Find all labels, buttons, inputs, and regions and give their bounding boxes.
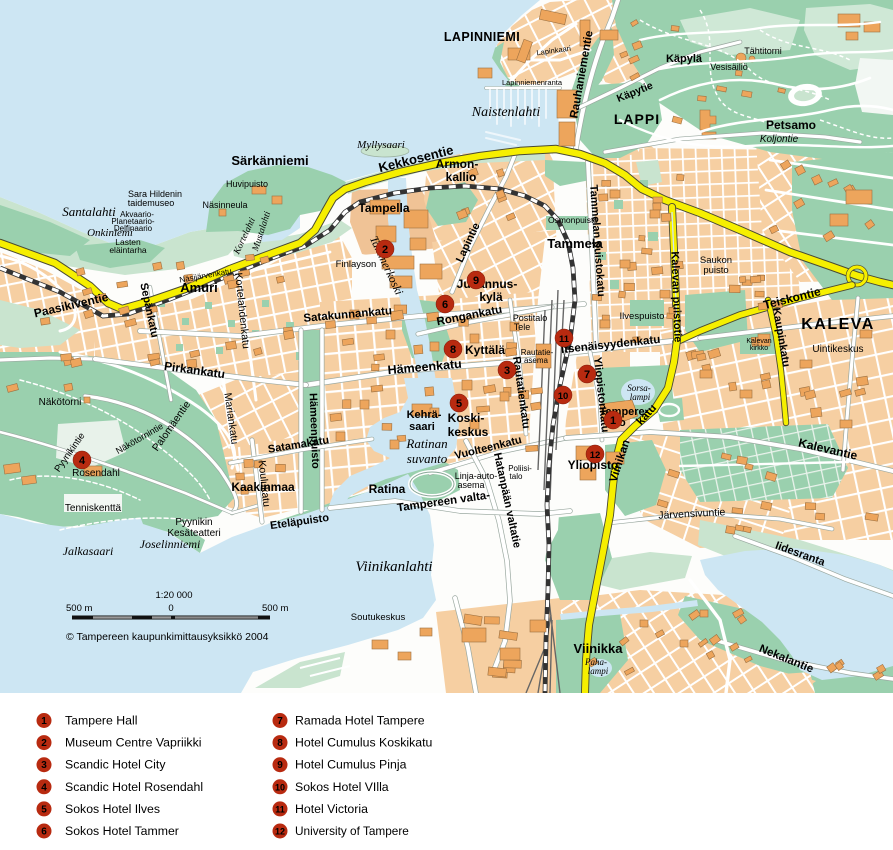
- svg-text:7: 7: [277, 716, 283, 727]
- svg-text:eläintarha: eläintarha: [109, 245, 147, 255]
- svg-text:Kyttälä: Kyttälä: [465, 343, 505, 357]
- svg-text:lampi: lampi: [630, 392, 651, 402]
- svg-text:Ratinan: Ratinan: [405, 436, 447, 451]
- svg-text:Vesisäiliö: Vesisäiliö: [710, 62, 748, 72]
- svg-text:Petsamo: Petsamo: [766, 118, 816, 132]
- svg-text:Näkötorni: Näkötorni: [39, 397, 82, 408]
- svg-text:6: 6: [41, 827, 47, 838]
- svg-text:Rosendahl: Rosendahl: [72, 468, 120, 479]
- svg-text:Pyynikin: Pyynikin: [175, 517, 212, 528]
- svg-text:Ratina: Ratina: [369, 482, 406, 496]
- svg-text:Ramada Hotel Tampere: Ramada Hotel Tampere: [295, 714, 425, 728]
- svg-text:6: 6: [442, 299, 448, 311]
- svg-text:Huvipuisto: Huvipuisto: [226, 179, 268, 189]
- svg-text:Kehrä-: Kehrä-: [407, 409, 442, 421]
- svg-text:2: 2: [41, 738, 47, 749]
- svg-text:Museum Centre Vapriikki: Museum Centre Vapriikki: [65, 736, 201, 750]
- svg-text:Onkiniemi: Onkiniemi: [87, 227, 133, 239]
- svg-text:Lapinniemenranta: Lapinniemenranta: [502, 78, 563, 87]
- svg-text:Myllysaari: Myllysaari: [356, 139, 405, 151]
- svg-text:Sokos Hotel VIlla: Sokos Hotel VIlla: [295, 780, 389, 794]
- svg-text:4: 4: [41, 782, 47, 793]
- svg-text:keskus: keskus: [448, 425, 489, 439]
- svg-text:500 m: 500 m: [66, 603, 92, 614]
- svg-text:Scandic Hotel Rosendahl: Scandic Hotel Rosendahl: [65, 780, 203, 794]
- svg-text:9: 9: [277, 760, 283, 771]
- svg-text:5: 5: [41, 804, 47, 815]
- svg-text:8: 8: [277, 738, 283, 749]
- svg-text:3: 3: [504, 365, 510, 377]
- svg-text:LAPINNIEMI: LAPINNIEMI: [444, 30, 520, 44]
- svg-text:Koski-: Koski-: [448, 411, 485, 425]
- svg-text:9: 9: [473, 275, 479, 287]
- svg-text:11: 11: [559, 334, 570, 345]
- svg-text:1: 1: [41, 716, 47, 727]
- svg-text:Scandic Hotel City: Scandic Hotel City: [65, 758, 166, 772]
- svg-text:Hotel Cumulus Koskikatu: Hotel Cumulus Koskikatu: [295, 736, 433, 750]
- svg-text:KALEVA: KALEVA: [801, 316, 875, 333]
- svg-text:0: 0: [168, 603, 173, 614]
- svg-text:Finlayson: Finlayson: [336, 259, 377, 270]
- svg-text:Naistenlahti: Naistenlahti: [471, 105, 541, 120]
- svg-text:11: 11: [275, 804, 285, 814]
- svg-text:1:20 000: 1:20 000: [156, 590, 193, 601]
- svg-text:LAPPI: LAPPI: [614, 111, 660, 127]
- svg-text:10: 10: [275, 782, 285, 792]
- svg-text:asema: asema: [457, 480, 484, 490]
- svg-text:Tampere Hall: Tampere Hall: [65, 714, 137, 728]
- svg-text:taidemuseo: taidemuseo: [128, 198, 175, 208]
- svg-text:Ilvespuisto: Ilvespuisto: [620, 311, 665, 322]
- svg-text:Soutukeskus: Soutukeskus: [351, 612, 406, 623]
- svg-text:suvanto: suvanto: [407, 451, 448, 466]
- svg-text:Tampella: Tampella: [358, 201, 409, 215]
- svg-text:kylä: kylä: [479, 290, 503, 304]
- svg-text:Hotel Victoria: Hotel Victoria: [295, 802, 368, 816]
- svg-text:500 m: 500 m: [262, 603, 288, 614]
- svg-text:Jalkasaari: Jalkasaari: [63, 544, 114, 558]
- svg-text:© Tampereen kaupunkimittausyks: © Tampereen kaupunkimittausyksikkö 2004: [66, 631, 269, 643]
- svg-text:3: 3: [41, 760, 47, 771]
- svg-text:talo: talo: [510, 472, 523, 481]
- svg-text:12: 12: [590, 450, 601, 461]
- svg-text:Santalahti: Santalahti: [62, 204, 116, 219]
- svg-text:4: 4: [79, 455, 86, 467]
- svg-text:10: 10: [558, 391, 569, 402]
- svg-text:Viinikka: Viinikka: [574, 641, 624, 656]
- svg-text:8: 8: [450, 344, 456, 356]
- svg-text:7: 7: [584, 369, 590, 381]
- svg-text:Tähtitorni: Tähtitorni: [744, 46, 782, 56]
- svg-text:kallio: kallio: [446, 170, 477, 184]
- svg-text:Koljontie: Koljontie: [760, 134, 799, 145]
- svg-text:Kalevan: Kalevan: [746, 338, 771, 345]
- svg-text:1: 1: [610, 415, 616, 427]
- svg-text:Viinikanlahti: Viinikanlahti: [355, 559, 432, 575]
- svg-text:5: 5: [456, 398, 462, 410]
- svg-text:Hotel Cumulus Pinja: Hotel Cumulus Pinja: [295, 758, 407, 772]
- svg-text:puisto: puisto: [703, 265, 728, 276]
- svg-text:12: 12: [275, 827, 285, 837]
- svg-text:asema: asema: [524, 356, 549, 365]
- svg-text:kirkko: kirkko: [750, 345, 768, 352]
- svg-text:lampi: lampi: [588, 666, 609, 676]
- svg-text:Tenniskenttä: Tenniskenttä: [65, 503, 122, 514]
- svg-text:saari: saari: [409, 421, 435, 433]
- svg-text:Uintikeskus: Uintikeskus: [812, 344, 863, 355]
- svg-text:Särkänniemi: Särkänniemi: [231, 153, 308, 168]
- svg-text:Tele: Tele: [514, 322, 531, 332]
- svg-text:Sokos Hotel Tammer: Sokos Hotel Tammer: [65, 824, 179, 838]
- svg-text:University of Tampere: University of Tampere: [295, 824, 409, 838]
- svg-text:2: 2: [382, 244, 388, 256]
- svg-text:Juhannus-: Juhannus-: [457, 277, 518, 291]
- svg-text:Joselinniemi: Joselinniemi: [140, 537, 201, 551]
- svg-text:Sokos Hotel Ilves: Sokos Hotel Ilves: [65, 802, 160, 816]
- svg-text:Käpylä: Käpylä: [666, 53, 703, 65]
- svg-text:Näsinneula: Näsinneula: [202, 200, 247, 210]
